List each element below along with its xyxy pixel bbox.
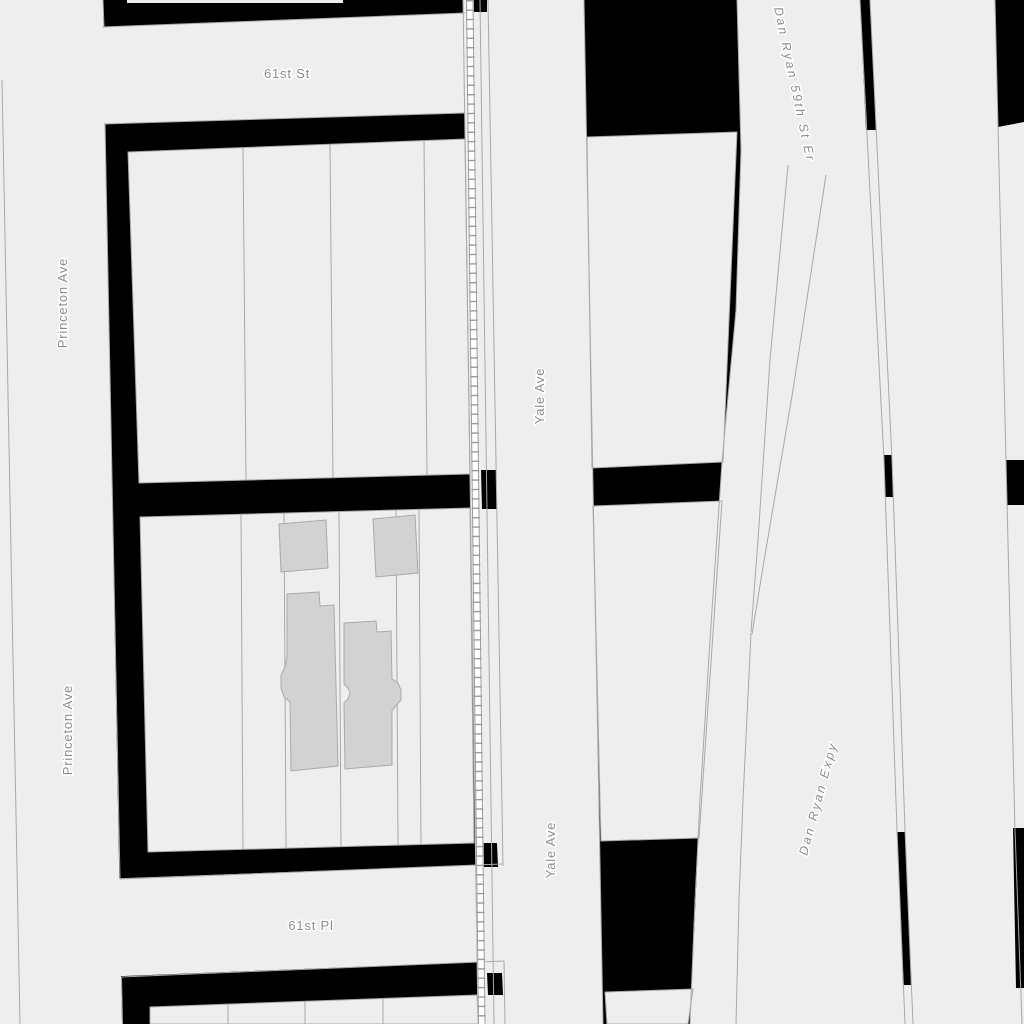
block-west-north (128, 139, 470, 483)
road-princeton-ave (0, 0, 122, 1024)
street-label-princeton-ave-north: Princeton Ave (55, 258, 70, 348)
building-garage-west (279, 520, 328, 572)
block-east-north (587, 132, 737, 468)
street-label-princeton-ave-south: Princeton Ave (60, 685, 75, 775)
map-viewport[interactable]: 61st St 61st Pl Princeton Ave Princeton … (0, 0, 1024, 1024)
street-label-yale-ave-south: Yale Ave (543, 822, 558, 879)
block-east-middle (593, 501, 722, 841)
land-sliver-top (127, 0, 343, 3)
street-label-yale-ave-north: Yale Ave (532, 368, 547, 425)
street-label-61st-pl: 61st Pl (288, 918, 333, 933)
street-label-61st-st: 61st St (264, 66, 310, 81)
building-garage-east (373, 515, 418, 577)
map-canvas[interactable]: 61st St 61st Pl Princeton Ave Princeton … (0, 0, 1024, 1024)
block-east-south (605, 989, 693, 1024)
